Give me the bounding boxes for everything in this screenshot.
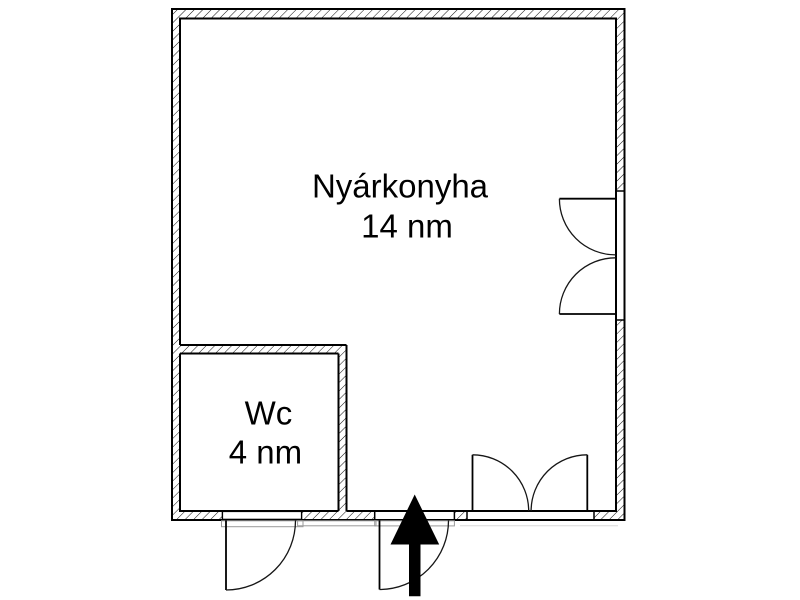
svg-text:14 nm: 14 nm [361, 208, 453, 245]
svg-text:Nyárkonyha: Nyárkonyha [312, 168, 489, 205]
svg-text:4 nm: 4 nm [229, 434, 302, 471]
svg-text:Wc: Wc [245, 395, 293, 432]
